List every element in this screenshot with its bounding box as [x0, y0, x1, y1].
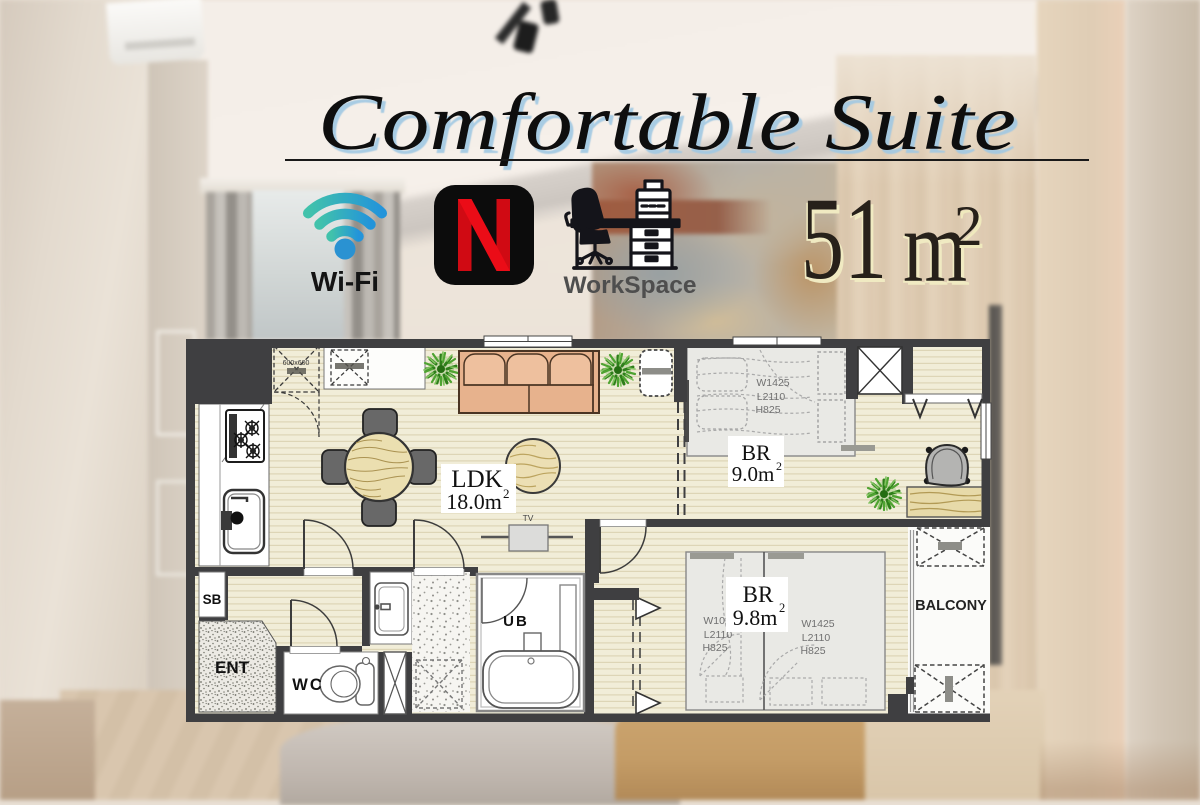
svg-text:H825: H825 — [702, 642, 727, 654]
svg-text:BR: BR — [743, 582, 774, 607]
svg-text:WC: WC — [292, 676, 324, 694]
svg-text:2: 2 — [779, 601, 785, 615]
svg-text:H825: H825 — [800, 645, 825, 657]
svg-text:9.8m: 9.8m — [733, 605, 778, 630]
svg-text:W1425: W1425 — [756, 377, 789, 389]
svg-text:BALCONY: BALCONY — [915, 598, 987, 614]
svg-text:600x600: 600x600 — [283, 360, 310, 367]
svg-text:2: 2 — [503, 486, 510, 501]
svg-text:W1425: W1425 — [801, 618, 834, 630]
svg-text:H825: H825 — [755, 404, 780, 416]
svg-text:ENT: ENT — [215, 658, 250, 677]
svg-text:TV: TV — [523, 513, 534, 523]
svg-text:UB: UB — [503, 613, 529, 630]
svg-text:L2110: L2110 — [802, 632, 831, 644]
svg-text:9.0m: 9.0m — [732, 462, 775, 486]
svg-text:L2110: L2110 — [757, 391, 786, 403]
svg-text:18.0m: 18.0m — [446, 489, 502, 514]
svg-text:SB: SB — [203, 592, 222, 607]
svg-text:2: 2 — [776, 459, 782, 473]
